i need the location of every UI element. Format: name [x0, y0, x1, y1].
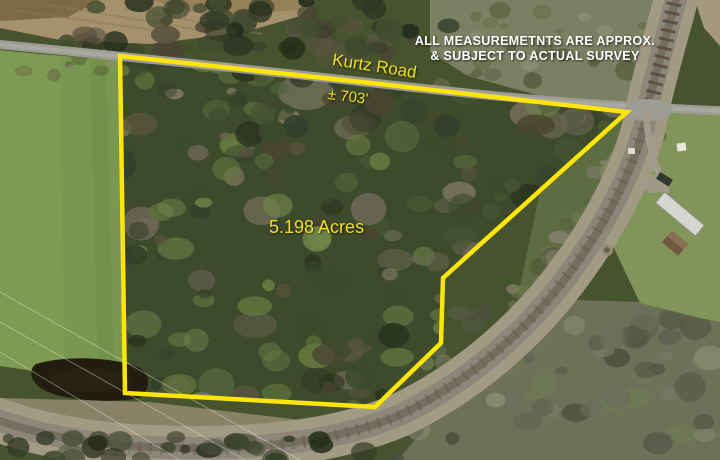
- disclaimer-note: ALL MEASUREMETNTS ARE APPROX. & SUBJECT …: [400, 34, 670, 63]
- acreage-label: 5.198 Acres: [269, 217, 364, 238]
- aerial-property-map: ALL MEASUREMETNTS ARE APPROX. & SUBJECT …: [0, 0, 720, 460]
- fire-pit: [601, 244, 613, 256]
- white-object: [676, 142, 686, 151]
- white-object-small: [628, 148, 635, 154]
- disclaimer-line2: & SUBJECT TO ACTUAL SURVEY: [400, 49, 670, 64]
- disclaimer-line1: ALL MEASUREMETNTS ARE APPROX.: [400, 34, 670, 49]
